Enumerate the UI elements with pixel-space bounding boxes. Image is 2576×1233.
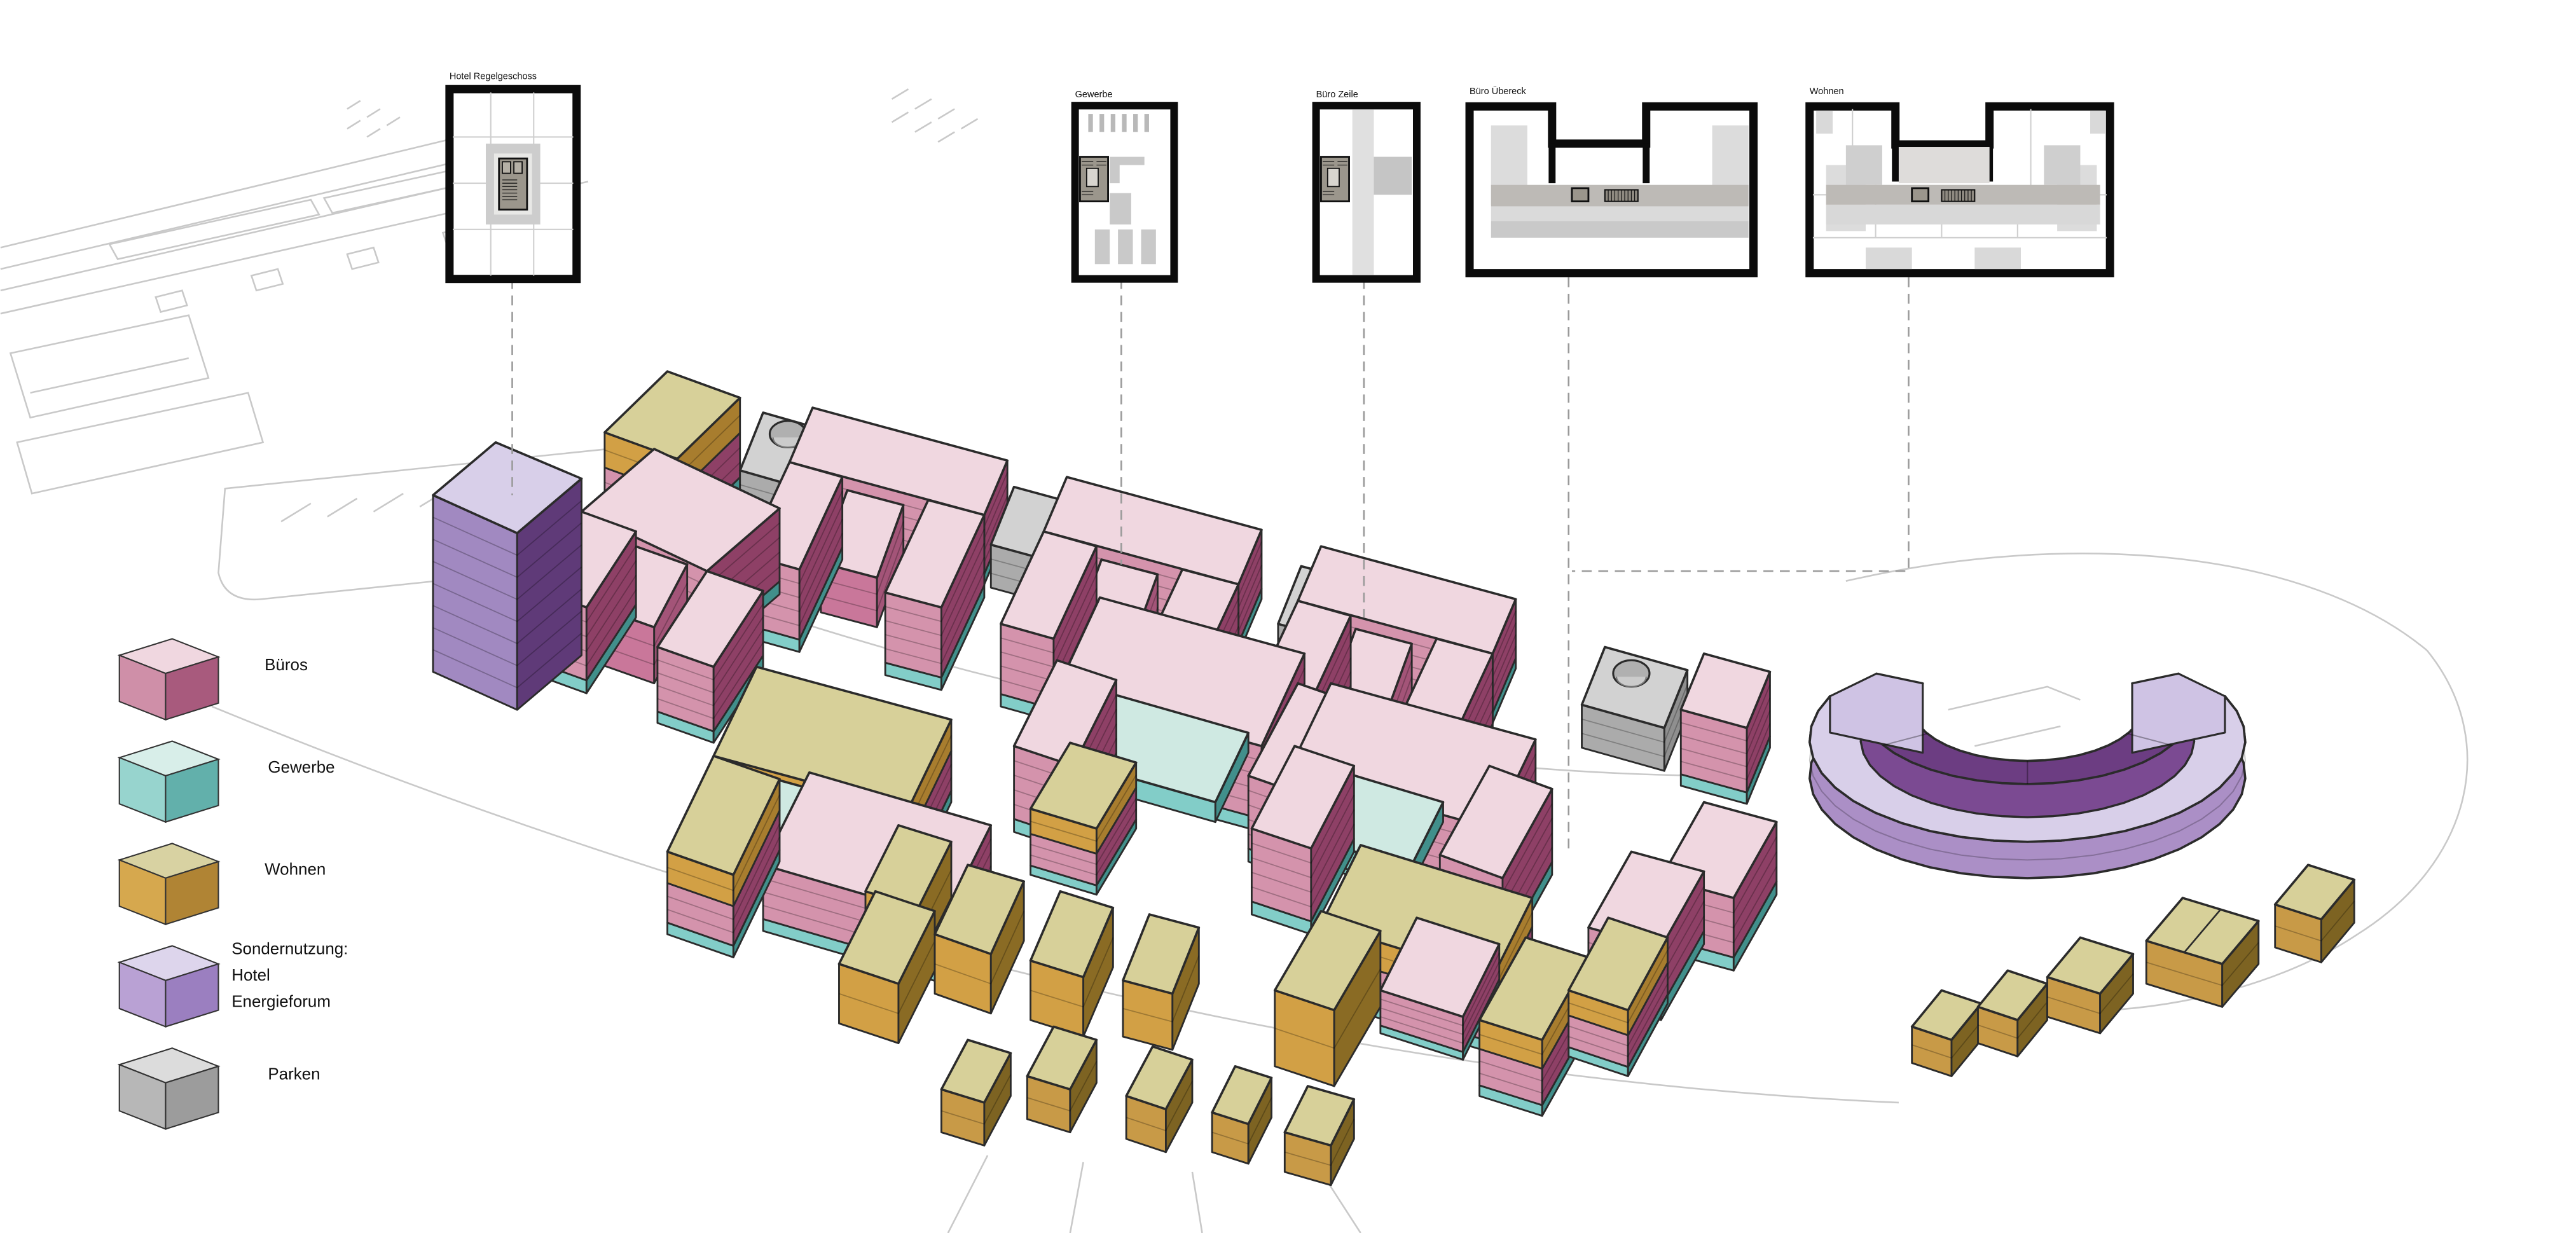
legend-label: Büros xyxy=(265,656,308,674)
legend-label-line: Energieforum xyxy=(231,993,331,1010)
floor-plan-wohnen: Wohnen xyxy=(1810,86,2110,273)
plan-label: Gewerbe xyxy=(1075,90,1113,100)
elevator-core xyxy=(1912,188,1929,202)
plan-label: Büro Zeile xyxy=(1316,90,1358,100)
legend-label: Gewerbe xyxy=(268,759,334,776)
elevator-core xyxy=(1572,188,1588,202)
leader-wohnen xyxy=(1572,277,1909,571)
legend: Büros Gewerbe Wohnen Sondernutzung: Hote… xyxy=(120,639,348,1129)
floor-plan-buero-uebereck: Büro Übereck xyxy=(1470,85,1753,273)
legend-item-wohnen: Wohnen xyxy=(120,843,326,924)
masterplan-axonometric-diagram: Hotel Regelgeschoss Gewerbe xyxy=(0,0,2576,1233)
rail-platform xyxy=(109,200,319,259)
legend-label: Parken xyxy=(268,1066,320,1084)
building-massing-model xyxy=(433,371,2354,1185)
plan-label: Hotel Regelgeschoss xyxy=(450,72,537,82)
context-building-outline xyxy=(17,393,263,493)
legend-item-gewerbe: Gewerbe xyxy=(120,741,335,822)
legend-label: Wohnen xyxy=(265,861,326,879)
plan-label: Büro Übereck xyxy=(1470,85,1526,97)
floor-plan-insets: Hotel Regelgeschoss Gewerbe xyxy=(450,72,2110,279)
context-building-outline xyxy=(10,315,208,418)
legend-label-line: Sondernutzung: xyxy=(231,940,348,958)
plan-label: Wohnen xyxy=(1810,86,1844,97)
masterplan-canvas: Hotel Regelgeschoss Gewerbe xyxy=(0,0,2576,1233)
legend-label-line: Hotel xyxy=(231,967,270,984)
floor-plan-buero-zeile: Büro Zeile xyxy=(1316,90,1417,279)
floor-plan-gewerbe: Gewerbe xyxy=(1075,90,1174,279)
floor-plan-hotel-regelgeschoss: Hotel Regelgeschoss xyxy=(450,72,577,279)
legend-item-parken: Parken xyxy=(120,1048,320,1129)
legend-item-sondernutzung-hotel-energieforum: Sondernutzung: Hotel Energieforum xyxy=(120,940,348,1026)
